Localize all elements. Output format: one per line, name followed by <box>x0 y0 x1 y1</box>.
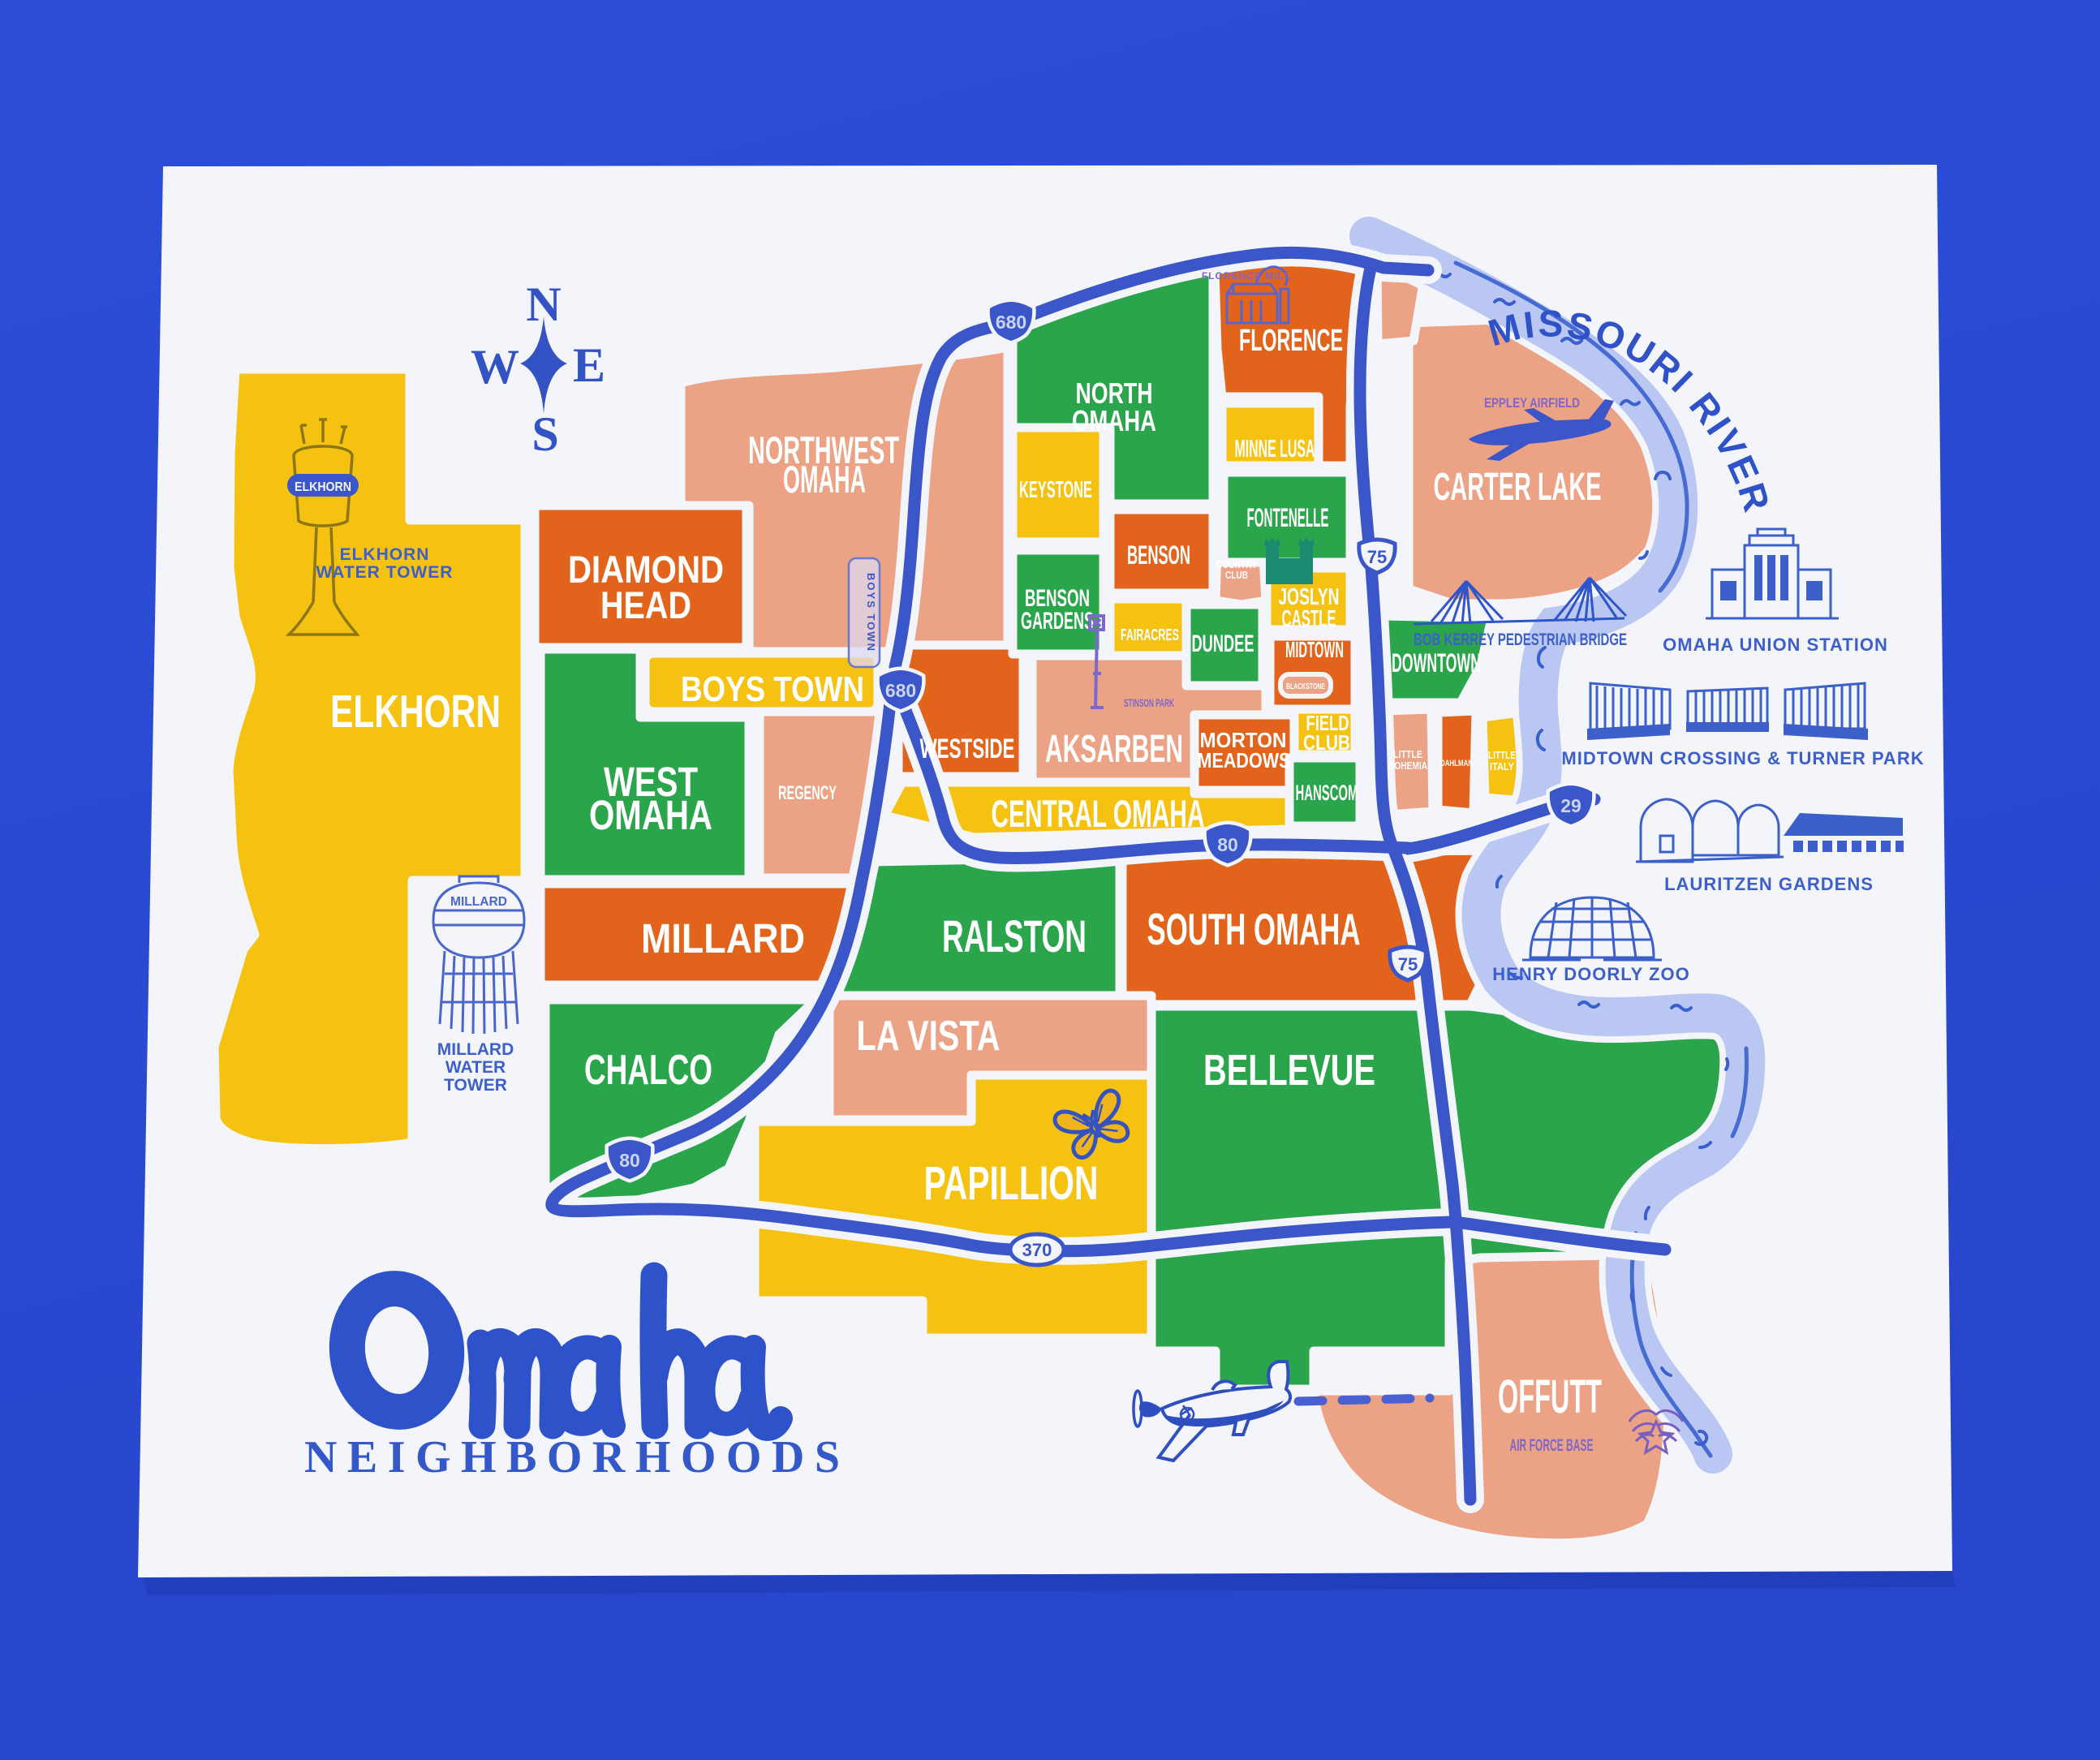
svg-text:BELLEVUE: BELLEVUE <box>1203 1046 1375 1095</box>
svg-text:LAURITZEN GARDENS: LAURITZEN GARDENS <box>1664 874 1874 894</box>
svg-text:REGENCY: REGENCY <box>778 782 837 804</box>
svg-text:680: 680 <box>885 680 916 701</box>
svg-text:FLORENCE MILL: FLORENCE MILL <box>1202 270 1291 282</box>
svg-text:PAPILLION: PAPILLION <box>924 1157 1099 1210</box>
svg-text:W: W <box>471 340 519 394</box>
svg-text:BLACKSTONE: BLACKSTONE <box>1286 682 1325 691</box>
svg-text:MINNE LUSA: MINNE LUSA <box>1235 434 1315 463</box>
svg-text:CENTRAL OMAHA: CENTRAL OMAHA <box>992 792 1205 835</box>
svg-text:ITALY: ITALY <box>1490 761 1515 772</box>
svg-text:HANSCOM: HANSCOM <box>1296 781 1358 805</box>
svg-text:RALSTON: RALSTON <box>942 910 1087 962</box>
svg-text:OMAHA UNION STATION: OMAHA UNION STATION <box>1663 635 1888 655</box>
svg-text:AIR FORCE BASE: AIR FORCE BASE <box>1510 1436 1594 1455</box>
svg-text:EPPLEY AIRFIELD: EPPLEY AIRFIELD <box>1484 395 1580 411</box>
svg-text:FONTENELLE: FONTENELLE <box>1247 503 1329 532</box>
svg-text:680: 680 <box>996 312 1026 333</box>
svg-text:CHALCO: CHALCO <box>584 1047 712 1094</box>
svg-text:FAIRACRES: FAIRACRES <box>1121 626 1179 644</box>
svg-text:MIDTOWN: MIDTOWN <box>1285 637 1344 662</box>
svg-text:LITTLE: LITTLE <box>1488 750 1516 761</box>
svg-text:HENRY DOORLY ZOO: HENRY DOORLY ZOO <box>1492 964 1689 984</box>
svg-text:AKSARBEN: AKSARBEN <box>1045 728 1183 771</box>
svg-text:WESTSIDE: WESTSIDE <box>920 734 1015 764</box>
svg-text:WATER TOWER: WATER TOWER <box>316 563 454 582</box>
svg-text:370: 370 <box>1022 1240 1052 1260</box>
svg-text:CLUB: CLUB <box>1303 730 1350 755</box>
svg-text:BOYS TOWN: BOYS TOWN <box>865 573 877 652</box>
svg-text:29: 29 <box>1560 795 1581 816</box>
svg-text:DUNDEE: DUNDEE <box>1192 630 1254 657</box>
svg-text:HEAD: HEAD <box>600 583 691 626</box>
svg-text:STINSON PARK: STINSON PARK <box>1124 696 1174 709</box>
svg-text:ELKHORN: ELKHORN <box>295 480 351 494</box>
svg-text:S: S <box>531 407 558 461</box>
svg-text:LITTLE: LITTLE <box>1393 749 1422 760</box>
svg-text:OMAHA: OMAHA <box>1072 404 1156 437</box>
svg-text:CASTLE: CASTLE <box>1282 606 1336 632</box>
svg-text:BOYS TOWN: BOYS TOWN <box>681 669 864 709</box>
svg-text:ELKHORN: ELKHORN <box>330 686 501 738</box>
svg-text:E: E <box>573 338 605 392</box>
svg-text:MILLARD: MILLARD <box>450 895 507 909</box>
svg-text:BOB KERREY PEDESTRIAN BRIDGE: BOB KERREY PEDESTRIAN BRIDGE <box>1414 630 1627 649</box>
svg-text:MILLARD: MILLARD <box>641 915 805 962</box>
svg-text:MEADOWS: MEADOWS <box>1198 748 1291 772</box>
svg-text:FLORENCE: FLORENCE <box>1239 324 1343 358</box>
svg-text:LA VISTA: LA VISTA <box>857 1013 1001 1060</box>
svg-text:DAHLMAN: DAHLMAN <box>1440 759 1473 768</box>
svg-text:75: 75 <box>1367 547 1387 567</box>
svg-text:75: 75 <box>1398 954 1418 975</box>
svg-text:SOUTH OMAHA: SOUTH OMAHA <box>1147 904 1361 954</box>
svg-text:TOWER: TOWER <box>444 1076 507 1095</box>
svg-text:KEYSTONE: KEYSTONE <box>1019 477 1092 503</box>
svg-text:MIDTOWN CROSSING & TURNER PARK: MIDTOWN CROSSING & TURNER PARK <box>1561 748 1924 768</box>
svg-text:BOHEMIA: BOHEMIA <box>1388 760 1427 772</box>
svg-text:GARDENS: GARDENS <box>1021 608 1094 635</box>
svg-text:BENSON: BENSON <box>1127 540 1190 570</box>
svg-text:OMAHA: OMAHA <box>783 458 866 501</box>
svg-text:80: 80 <box>619 1150 640 1171</box>
svg-text:CLUB: CLUB <box>1225 569 1248 581</box>
svg-text:WATER: WATER <box>445 1058 506 1077</box>
svg-text:80: 80 <box>1217 834 1238 855</box>
svg-text:MILLARD: MILLARD <box>437 1040 514 1059</box>
svg-text:CARTER LAKE: CARTER LAKE <box>1434 466 1602 509</box>
svg-text:ELKHORN: ELKHORN <box>340 545 430 564</box>
svg-text:OMAHA: OMAHA <box>589 792 712 838</box>
svg-text:OFFUTT: OFFUTT <box>1498 1371 1602 1423</box>
svg-text:DOWNTOWN: DOWNTOWN <box>1392 648 1481 678</box>
